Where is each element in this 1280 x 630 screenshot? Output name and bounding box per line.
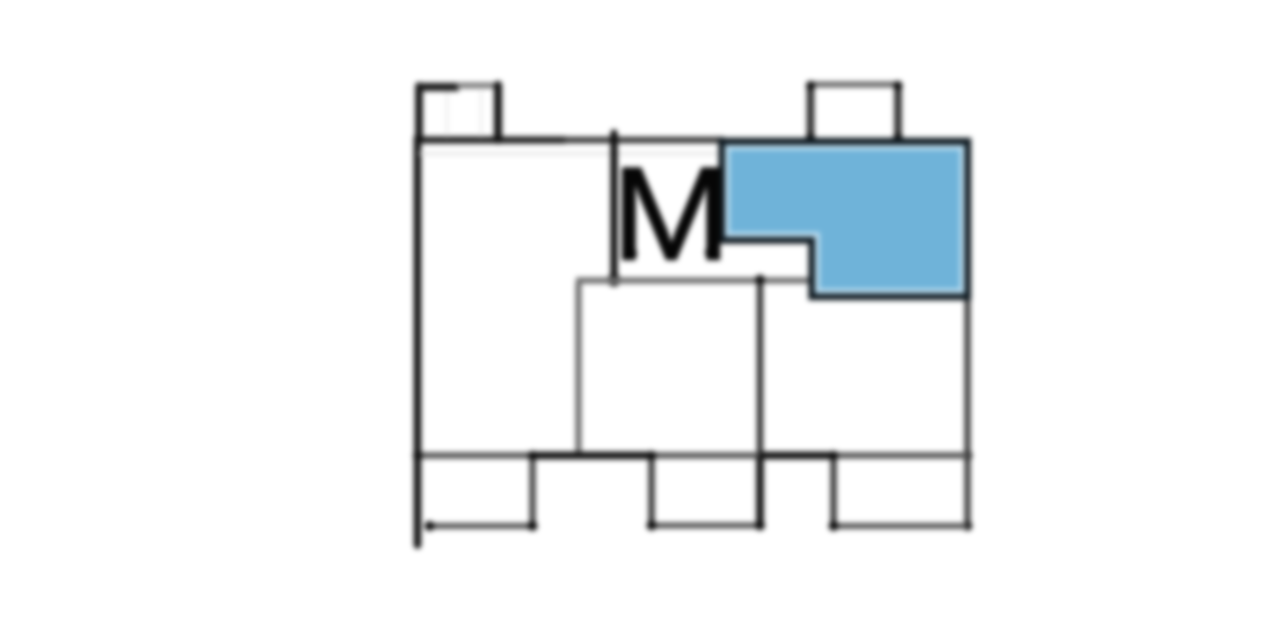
- svg-text:M: M: [611, 140, 731, 289]
